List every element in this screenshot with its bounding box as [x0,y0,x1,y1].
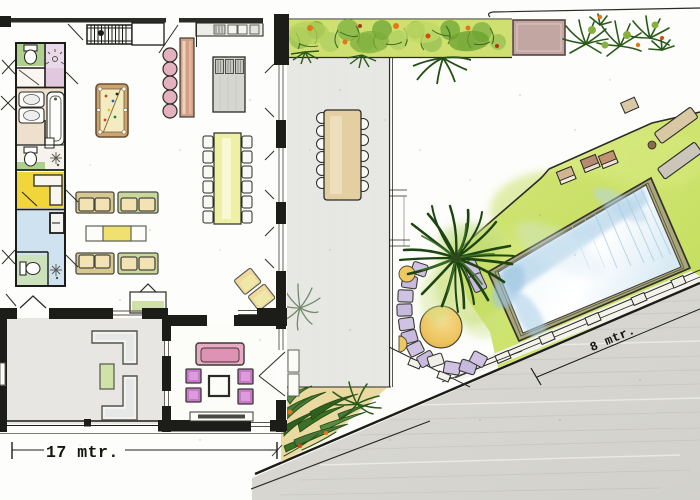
svg-text:17 mtr.: 17 mtr. [46,443,119,462]
